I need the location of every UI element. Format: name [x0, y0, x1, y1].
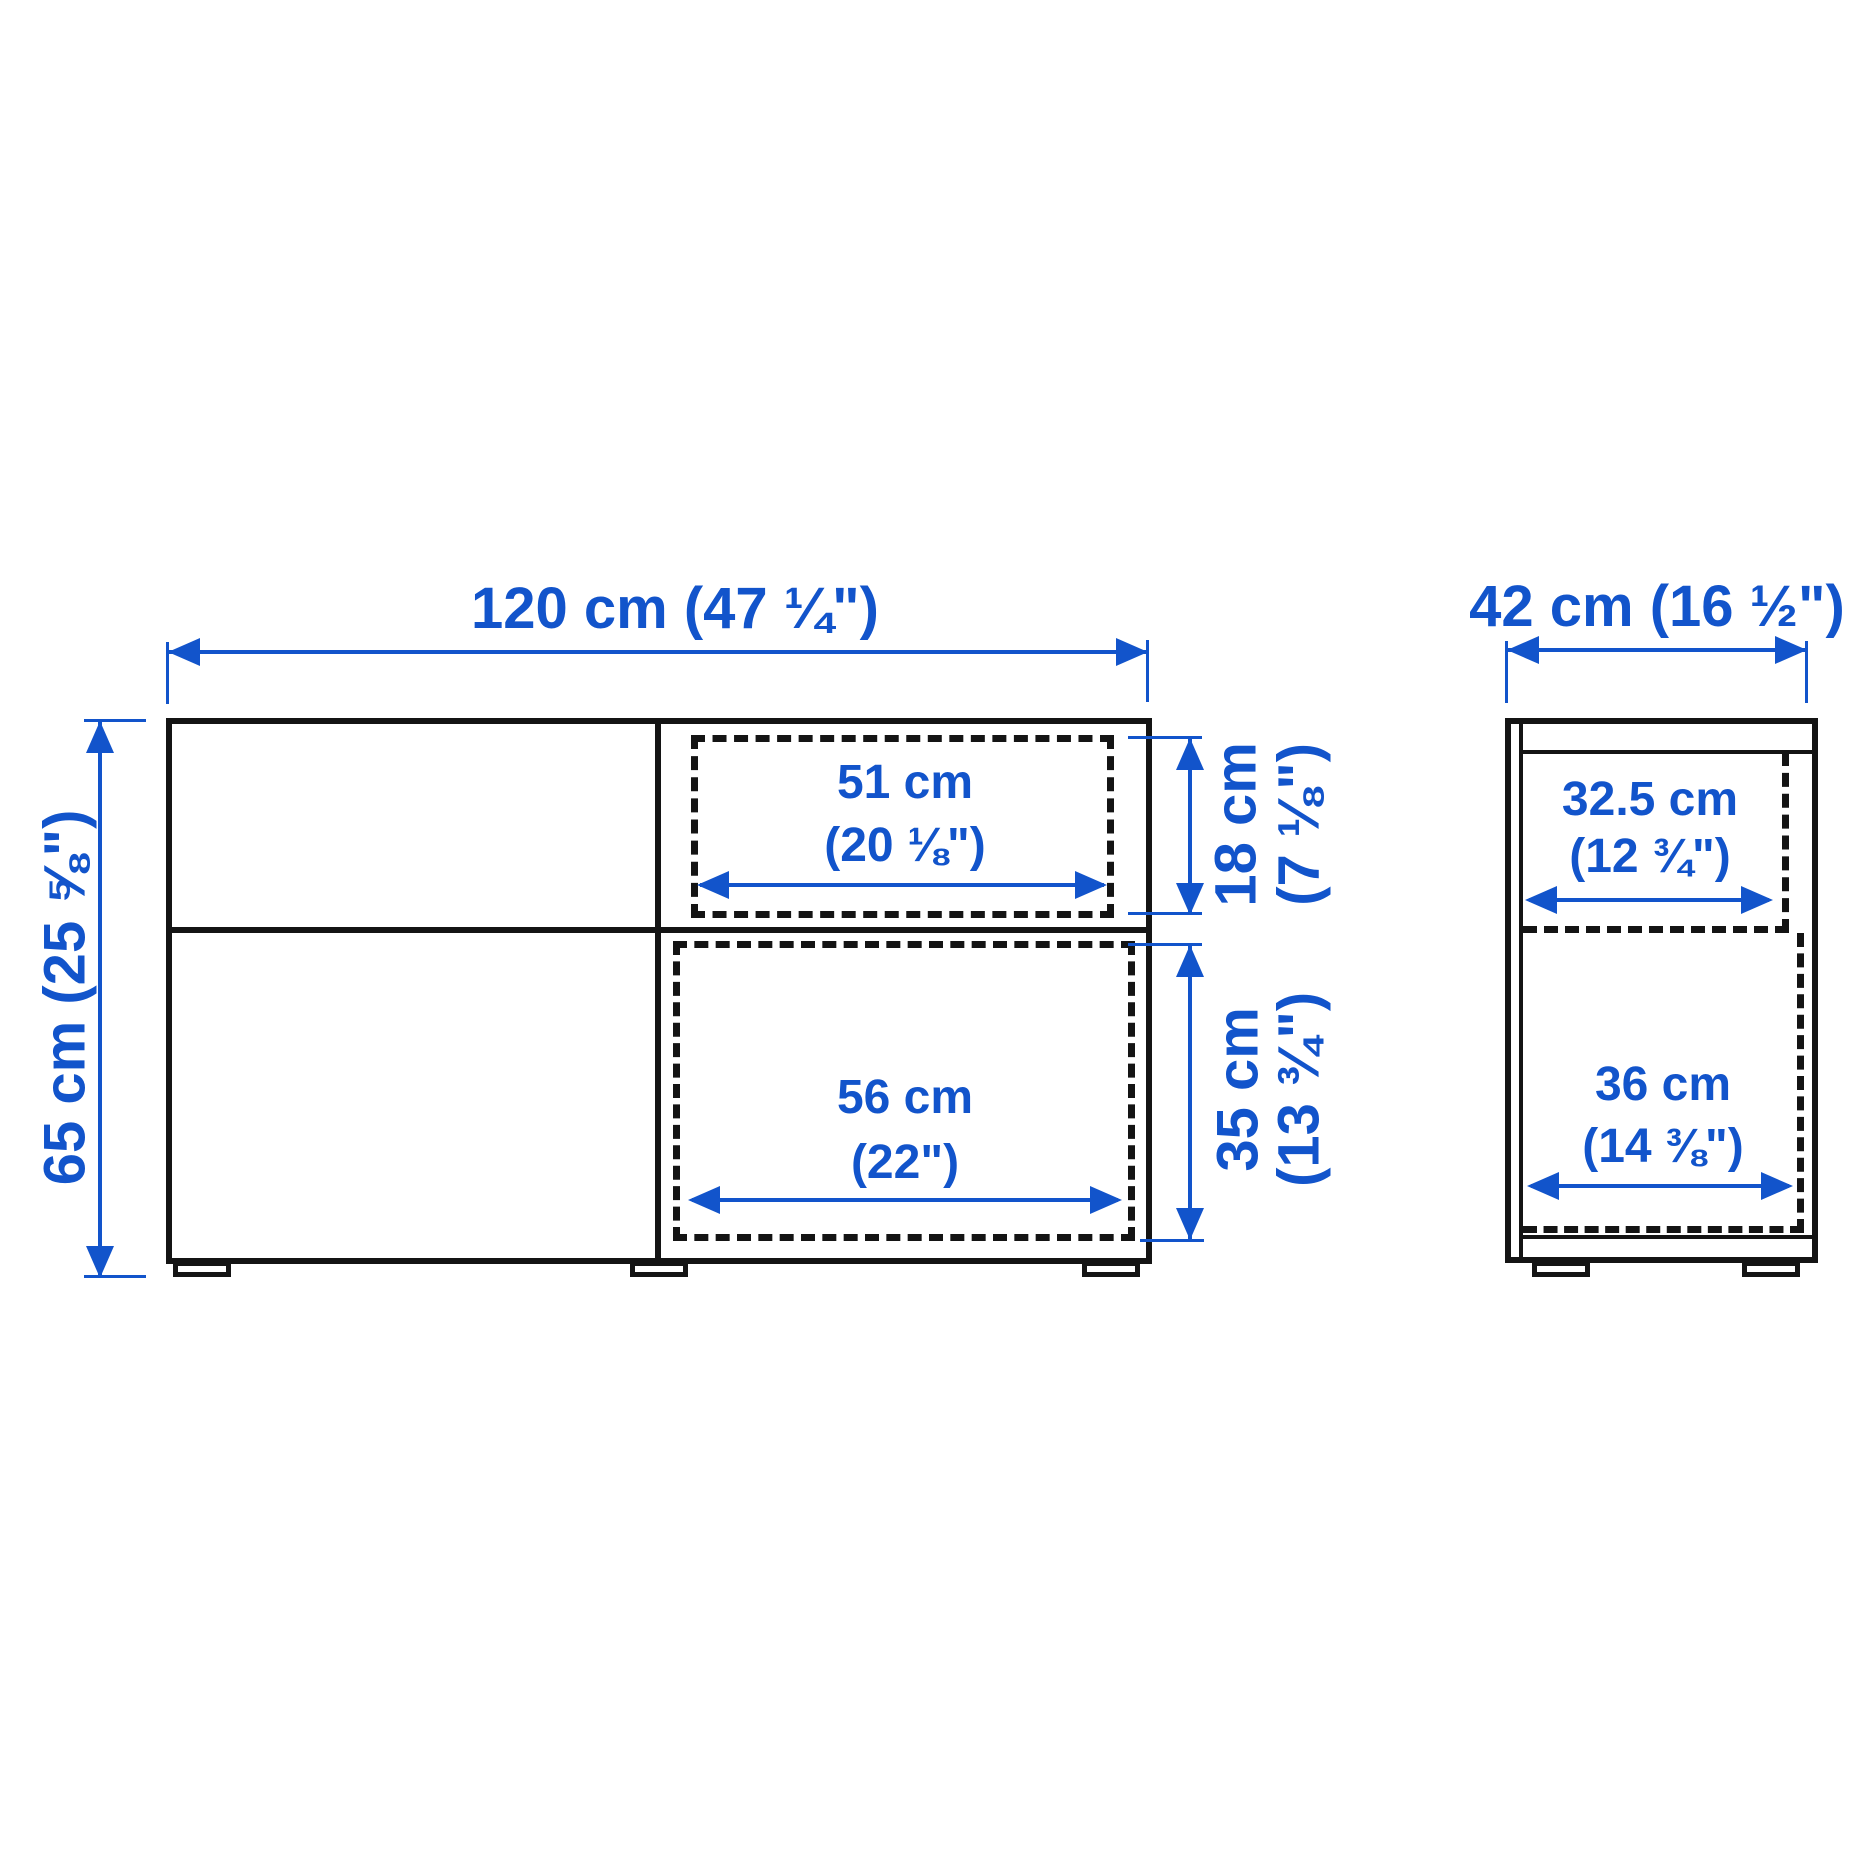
front-height-dimension-label: 65 cm (25 ⅝")	[33, 697, 100, 1297]
front-top-drawer-height-label-line1: 18 cm	[1204, 674, 1271, 974]
front-top-drawer-height-tick-top	[1128, 736, 1202, 739]
front-top-drawer-width-arrowhead-left	[697, 871, 729, 899]
side-depth-tick-right	[1805, 641, 1808, 703]
front-bottom-drawer-width-label-line1: 56 cm	[705, 1070, 1105, 1125]
front-vertical-divider	[655, 718, 661, 1264]
side-bottom-compartment-arrowhead-right	[1761, 1172, 1793, 1200]
front-height-tick-top	[84, 719, 146, 722]
front-bottom-drawer-width-arrow-line	[692, 1198, 1118, 1202]
front-top-drawer-width-label-line1: 51 cm	[705, 755, 1105, 810]
front-bottom-drawer-height-label-line2: (13 ¾")	[1267, 939, 1334, 1239]
side-bottom-compartment-arrowhead-left	[1527, 1172, 1559, 1200]
side-bottom-panel-line	[1523, 1235, 1813, 1239]
side-bottom-compartment-width-label-line2: (14 ⅜")	[1513, 1119, 1813, 1174]
front-bottom-drawer-height-dimension-line	[1188, 945, 1192, 1240]
front-bottom-drawer-width-label-line2: (22")	[705, 1135, 1105, 1190]
side-foot-right	[1742, 1261, 1800, 1277]
side-foot-left	[1532, 1261, 1590, 1277]
front-bottom-drawer-width-arrowhead-right	[1090, 1186, 1122, 1214]
front-top-drawer-width-arrowhead-right	[1075, 871, 1107, 899]
front-horizontal-divider	[166, 927, 1152, 933]
front-bottom-drawer-height-label-line1: 35 cm	[1206, 939, 1273, 1239]
front-top-drawer-width-label-line2: (20 ⅛")	[705, 818, 1105, 873]
front-height-arrowhead-bottom	[86, 1246, 114, 1278]
front-width-arrowhead-left	[168, 638, 200, 666]
front-bottom-drawer-height-arrowhead-top	[1176, 945, 1204, 977]
side-bottom-compartment-arrow-line	[1531, 1184, 1789, 1188]
front-width-arrowhead-right	[1116, 638, 1148, 666]
front-bottom-drawer-width-arrowhead-left	[688, 1186, 720, 1214]
front-bottom-drawer-height-tick-bottom	[1140, 1239, 1204, 1242]
front-width-dimension-line	[168, 650, 1148, 654]
front-top-drawer-width-arrow-line	[700, 883, 1104, 887]
front-bottom-drawer-height-arrowhead-bottom	[1176, 1208, 1204, 1240]
front-height-arrowhead-top	[86, 721, 114, 753]
side-depth-tick-left	[1505, 641, 1508, 703]
side-top-compartment-width-label-line2: (12 ¾")	[1500, 829, 1800, 884]
product-dimension-diagram: 120 cm (47 ¼") 65 cm (25 ⅝") 51 cm (20 ⅛…	[0, 0, 1860, 1860]
front-top-drawer-height-arrowhead-top	[1176, 738, 1204, 770]
front-top-drawer-height-tick-bottom	[1128, 912, 1202, 915]
front-width-tick-right	[1146, 640, 1149, 702]
side-bottom-compartment-width-label-line1: 36 cm	[1513, 1057, 1813, 1112]
side-depth-arrowhead-right	[1775, 636, 1807, 664]
front-height-tick-bottom	[84, 1275, 146, 1278]
front-width-tick-left	[166, 642, 169, 704]
front-width-dimension-label: 120 cm (47 ¼")	[375, 576, 975, 643]
side-top-compartment-arrowhead-right	[1741, 886, 1773, 914]
front-top-drawer-height-arrowhead-bottom	[1176, 883, 1204, 915]
side-depth-dimension-label: 42 cm (16 ½")	[1407, 574, 1860, 641]
side-top-compartment-arrowhead-left	[1525, 886, 1557, 914]
side-top-compartment-width-label-line1: 32.5 cm	[1500, 772, 1800, 827]
side-top-compartment-arrow-line	[1529, 898, 1769, 902]
side-depth-arrowhead-left	[1507, 636, 1539, 664]
front-bottom-drawer-height-tick-top	[1128, 943, 1202, 946]
front-height-dimension-line	[98, 721, 102, 1278]
side-depth-dimension-line	[1507, 648, 1807, 652]
front-top-drawer-height-label-line2: (7 ⅛")	[1267, 674, 1334, 974]
